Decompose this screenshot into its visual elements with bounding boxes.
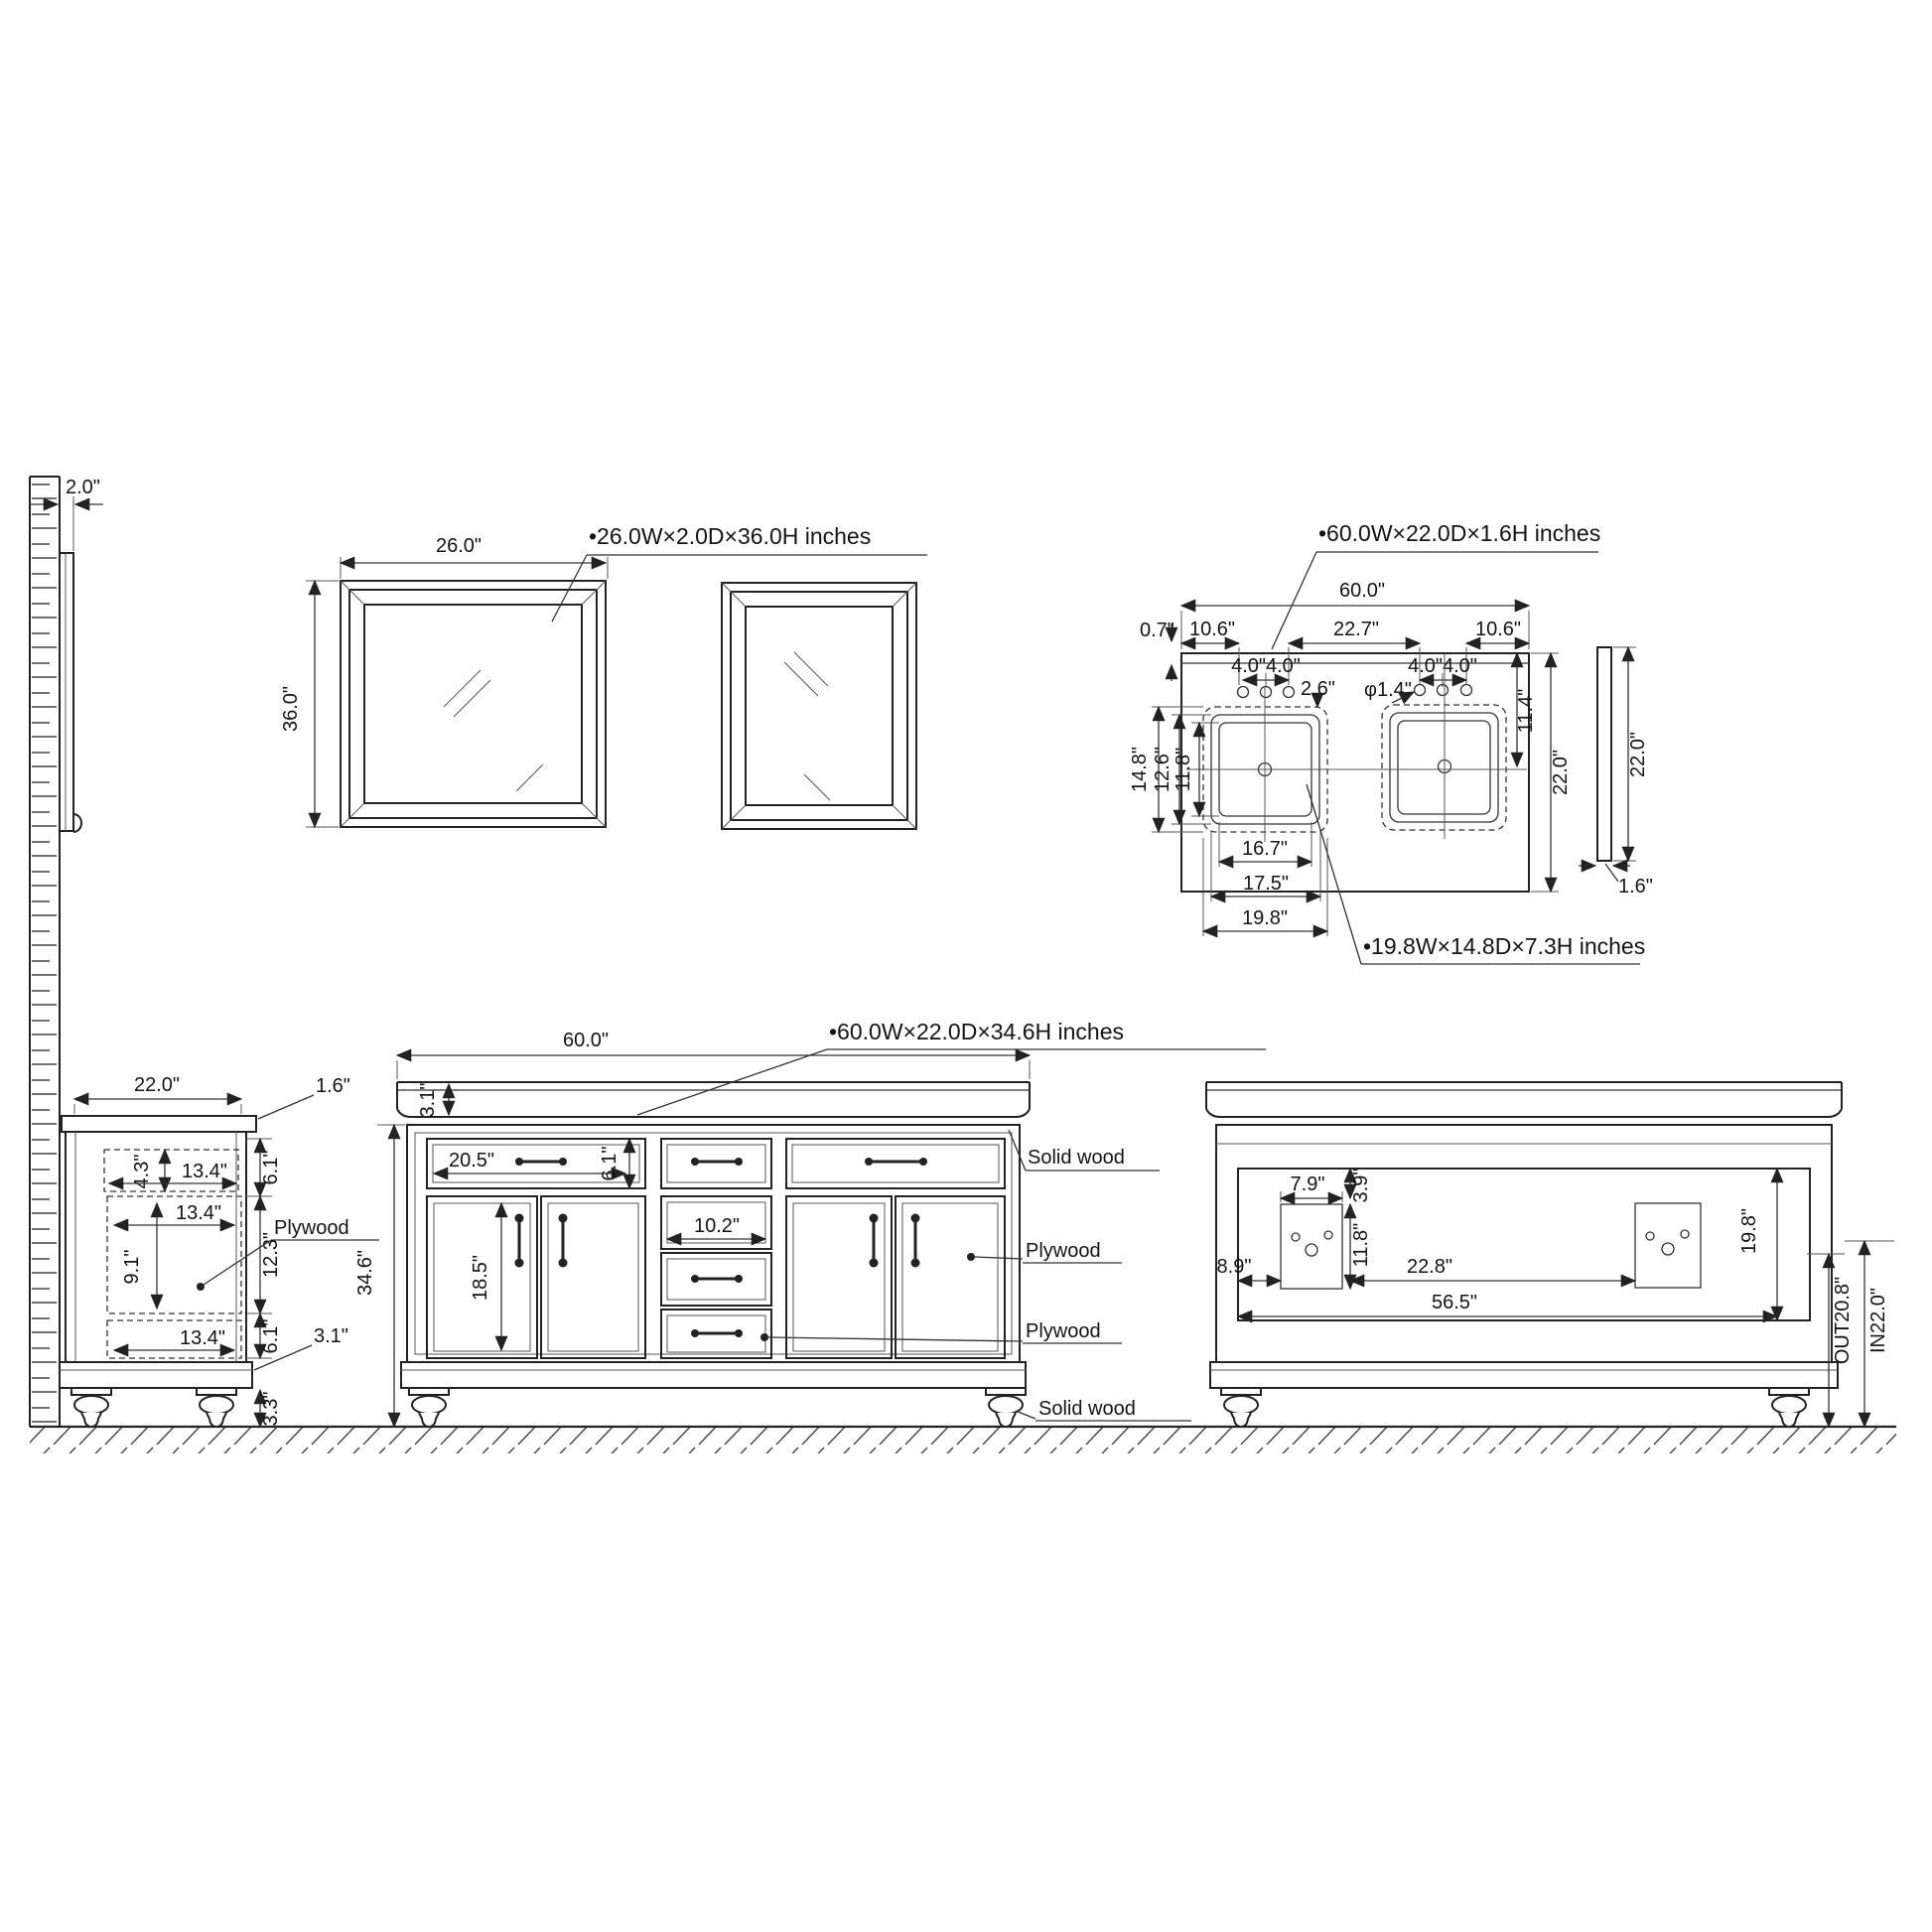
mirror-2-front: [722, 583, 916, 829]
label-center-span: 22.7": [1333, 619, 1379, 640]
label-countertop-width: 60.0": [1339, 580, 1385, 602]
label-plywood-side: Plywood: [274, 1217, 349, 1239]
dim-cutout-width: 7.9": [1281, 1173, 1342, 1202]
label-plywood-drawer: Plywood: [760, 1320, 1122, 1343]
dim-opening-width: 56.5": [1238, 1292, 1777, 1316]
dim-front-counter-thickness: 3.1": [417, 1083, 449, 1118]
dim-sink-widths: 16.7" 17.5" 19.8": [1203, 822, 1327, 936]
callout-sink: •19.8W×14.8D×7.3H inches: [1307, 784, 1645, 964]
vanity-back-view: 7.9" 3.9" 11.8" 8.9" 22.8" 56.5" 19.8": [1206, 1082, 1894, 1427]
label-side-view-depth: 22.0": [134, 1074, 180, 1096]
label-side-bottom-section: 6.1": [260, 1319, 282, 1354]
label-solid-wood-top: Solid wood: [1009, 1130, 1160, 1171]
label-middle-drawer-width: 10.2": [694, 1215, 740, 1237]
label-side-mid-inner-height: 9.1": [121, 1250, 143, 1285]
dim-side-sections: 6.1" 12.3" 6.1": [246, 1139, 282, 1358]
label-hole-spacing-right: 4.0"4.0": [1408, 655, 1477, 677]
foot: [1769, 1388, 1809, 1427]
drawer-handle: [865, 1158, 927, 1166]
countertop-plan: •60.0W×22.0D×1.6H inches 60.0" 10.6" 22.…: [1129, 520, 1653, 964]
label-sink-callout: •19.8W×14.8D×7.3H inches: [1363, 933, 1645, 959]
label-hole-diameter: φ1.4": [1364, 679, 1412, 701]
dim-drain-out: OUT20.8": [1807, 1254, 1854, 1427]
label-sink-width-outer: 19.8": [1242, 907, 1288, 929]
label-door-height: 18.5": [470, 1255, 491, 1301]
back-cutout-right: [1635, 1203, 1701, 1288]
front-countertop: [397, 1082, 1030, 1117]
foot: [71, 1388, 111, 1427]
label-hole-to-sink: 2.6": [1301, 678, 1335, 700]
label-side-counter-thickness: 1.6": [316, 1075, 350, 1097]
label-drain-out: OUT20.8": [1832, 1277, 1854, 1364]
label-mirror-depth: 2.0": [66, 477, 100, 498]
label-side-foot-height: 3.3": [260, 1392, 282, 1427]
drawer-handle: [691, 1275, 743, 1283]
label-countertop-depth: 22.0": [1550, 750, 1572, 795]
callout-countertop: •60.0W×22.0D×1.6H inches: [1272, 520, 1600, 649]
label-material-door: Plywood: [1026, 1240, 1101, 1262]
front-middle-drawers: 10.2": [661, 1196, 771, 1358]
drawer-handle: [691, 1158, 743, 1166]
glass-marks: [784, 652, 830, 800]
wall-section: [30, 477, 60, 1427]
label-right-offset: 10.6": [1475, 619, 1521, 640]
diagram-svg: 2.0" 26.0" 36.0" •26.0W×2.0D×36.0H: [0, 0, 1932, 1932]
label-countertop-callout: •60.0W×22.0D×1.6H inches: [1318, 520, 1600, 546]
dim-between-cutouts: 22.8": [1350, 1256, 1635, 1281]
dim-cutout-height: 11.8": [1350, 1204, 1372, 1289]
label-water-in: IN22.0": [1867, 1288, 1889, 1353]
label-sink-depth-inner: 11.8": [1173, 748, 1194, 792]
label-side-plywood: Plywood: [197, 1217, 379, 1291]
label-sink-depth-outer: 14.8": [1129, 747, 1151, 792]
label-top-drawer-width: 20.5": [449, 1150, 494, 1172]
sink-1-plan: [1203, 687, 1327, 842]
label-hole-spacing-left: 4.0"4.0": [1231, 655, 1301, 677]
dim-total-height: 34.6": [354, 1125, 405, 1427]
label-material-foot: Solid wood: [1038, 1398, 1136, 1420]
dim-countertop-depth: 22.0": [1531, 653, 1572, 892]
label-cutout-height: 11.8": [1350, 1223, 1372, 1268]
dim-sink-setback: 11.4": [1515, 653, 1537, 766]
label-side-drawer-width: 13.4": [182, 1161, 227, 1182]
mirror-1-front: 26.0" 36.0" •26.0W×2.0D×36.0H inches: [280, 523, 927, 827]
label-top-drawer-height: 6.1": [599, 1147, 621, 1181]
label-opening-width: 56.5": [1432, 1292, 1477, 1313]
label-back-left-offset: 8.9": [1217, 1256, 1252, 1278]
dim-back-left-offset: 8.9": [1217, 1256, 1281, 1281]
foot: [197, 1388, 236, 1427]
label-cutout-top-offset: 3.9": [1350, 1169, 1372, 1203]
label-material-top: Solid wood: [1028, 1147, 1125, 1169]
label-side-top-section: 6.1": [260, 1151, 282, 1185]
label-sink-depth-mid: 12.6": [1152, 747, 1173, 792]
back-cutout-left: [1281, 1204, 1342, 1289]
front-doors-right: [786, 1196, 1005, 1358]
dim-hole-spacing: 4.0"4.0" 4.0"4.0": [1231, 655, 1477, 687]
label-total-height: 34.6": [354, 1250, 376, 1296]
back-countertop: [1206, 1082, 1842, 1117]
label-solid-wood-foot: Solid wood: [1003, 1398, 1191, 1421]
label-mirror-height: 36.0": [280, 686, 302, 732]
label-sink-setback: 11.4": [1515, 689, 1537, 734]
dim-hole-to-sink: 2.6": [1301, 678, 1335, 707]
side-cabinet-mid: 13.4" 9.1": [107, 1196, 241, 1313]
vanity-front-view: 60.0" •60.0W×22.0D×34.6H inches 3.1": [397, 1019, 1266, 1427]
vanity-dimension-diagram: 2.0" 26.0" 36.0" •26.0W×2.0D×36.0H: [0, 0, 1932, 1932]
label-back-ledge-group: 0.7": [1140, 620, 1174, 681]
glass-marks: [444, 670, 543, 791]
foot: [986, 1388, 1026, 1427]
foot: [409, 1388, 449, 1427]
dim-mirror-height: 36.0": [280, 581, 339, 827]
label-left-offset: 10.6": [1189, 619, 1235, 640]
label-front-counter-thickness: 3.1": [417, 1083, 439, 1118]
label-between-cutouts: 22.8": [1407, 1256, 1452, 1278]
front-doors-left: 18.5": [427, 1196, 645, 1358]
foot: [1221, 1388, 1261, 1427]
dim-side-foot: 3.3": [260, 1390, 282, 1427]
drawer-handle: [691, 1329, 743, 1337]
label-vanity-callout: •60.0W×22.0D×34.6H inches: [829, 1019, 1124, 1044]
dim-side-depth: 22.0": [74, 1074, 241, 1114]
label-side-depth: 22.0": [1627, 732, 1649, 777]
label-mirror-callout: •26.0W×2.0D×36.0H inches: [589, 523, 871, 549]
drawer-handle: [515, 1158, 567, 1166]
door-handle: [911, 1214, 920, 1268]
dim-side-counter-thickness: 1.6": [258, 1075, 350, 1119]
dim-mirror-width: 26.0": [341, 535, 608, 579]
label-cutout-width: 7.9": [1291, 1173, 1325, 1195]
label-plywood-door: Plywood: [967, 1240, 1122, 1263]
label-side-bottom-width: 13.4": [180, 1327, 225, 1349]
label-side-thickness: 1.6": [1618, 876, 1653, 897]
callout-vanity: •60.0W×22.0D×34.6H inches: [637, 1019, 1266, 1115]
dim-cutout-top-offset: 3.9": [1350, 1169, 1372, 1203]
label-opening-height: 19.8": [1738, 1208, 1760, 1254]
door-handle: [870, 1214, 879, 1268]
floor: [30, 1427, 1896, 1453]
label-mirror-width: 26.0": [436, 535, 482, 557]
countertop-side-view: 22.0" 1.6": [1579, 647, 1653, 897]
label-material-drawer: Plywood: [1026, 1320, 1101, 1342]
dim-opening-height: 19.8": [1738, 1169, 1777, 1320]
label-side-mid-width: 13.4": [176, 1202, 221, 1224]
faucet-holes: [1238, 685, 1472, 698]
door-handle: [559, 1214, 568, 1268]
dim-hole-diameter: φ1.4": [1364, 679, 1414, 703]
side-drawer-top: 4.3" 13.4": [104, 1150, 238, 1191]
label-sink-width-mid: 17.5": [1243, 873, 1289, 895]
side-bottom-box: 13.4": [107, 1320, 241, 1358]
label-sink-width-inner: 16.7": [1242, 838, 1288, 860]
label-back-ledge: 0.7": [1140, 620, 1174, 641]
vanity-side-view: 22.0" 1.6" 4.3" 13.4" 13.4" 9.1" 13.4": [60, 1074, 405, 1427]
door-handle: [515, 1214, 524, 1268]
label-side-base-height: 3.1": [314, 1325, 348, 1347]
front-top-drawers: 20.5" 6.1": [427, 1139, 1005, 1188]
label-front-width: 60.0": [563, 1030, 609, 1051]
